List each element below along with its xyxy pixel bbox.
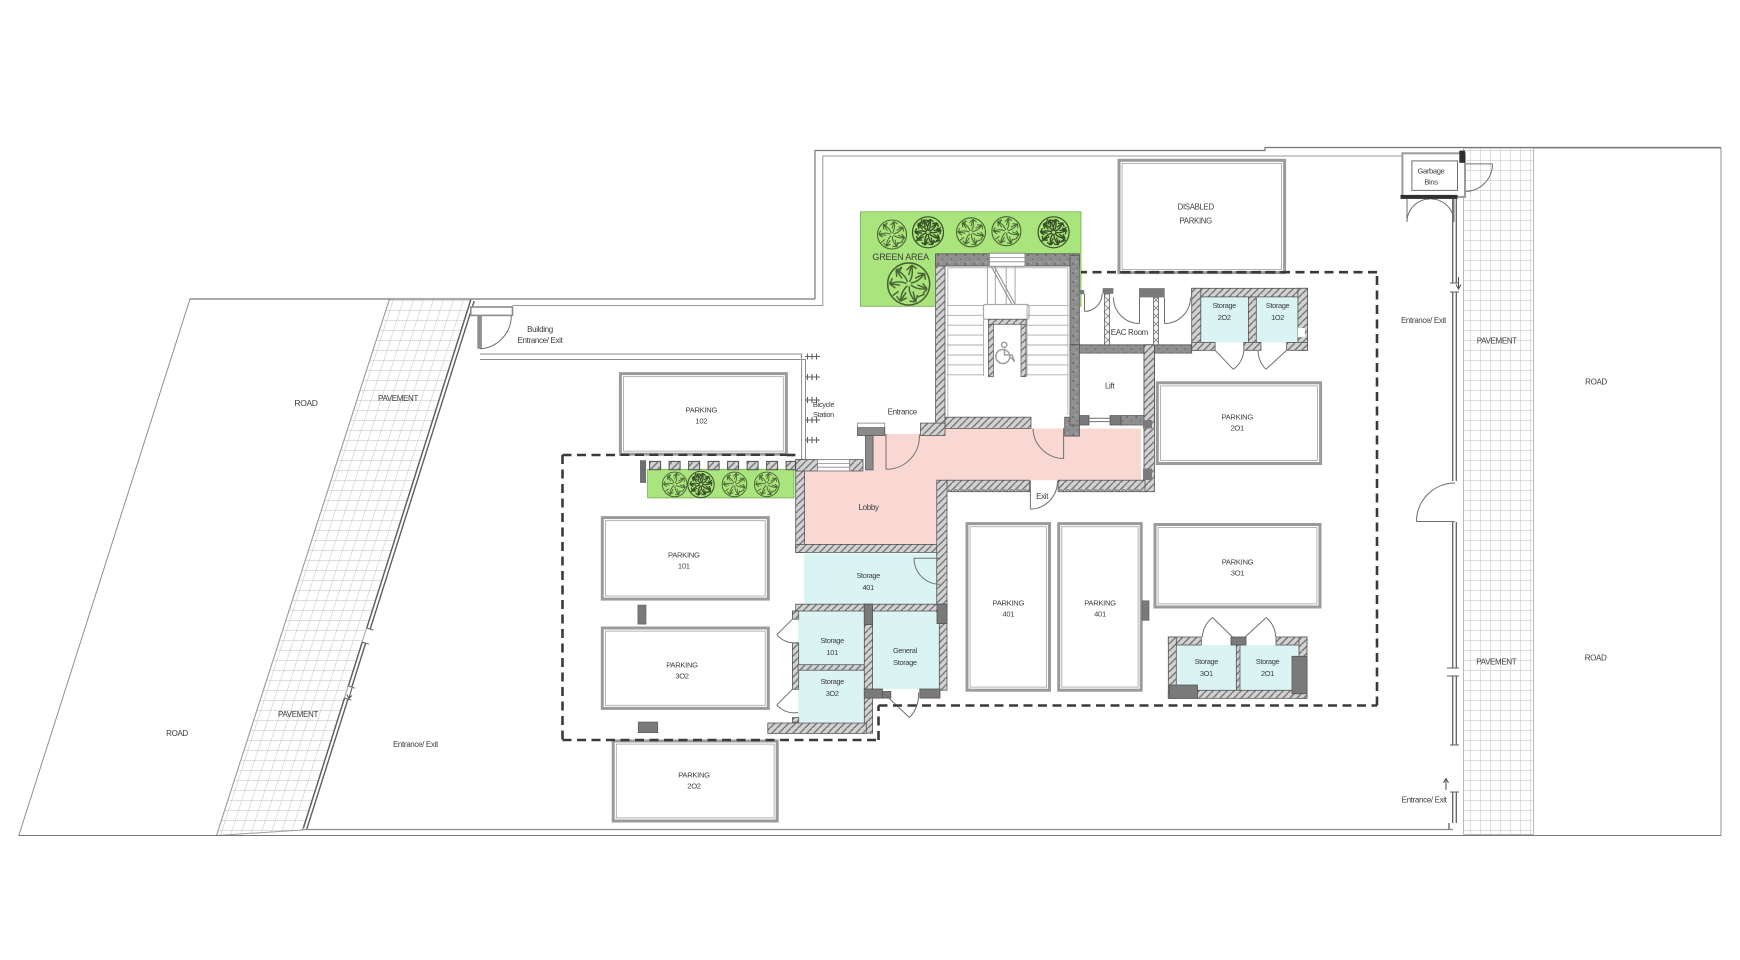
svg-text:Entrance/ Exit: Entrance/ Exit	[518, 336, 564, 345]
svg-text:PARKING: PARKING	[993, 599, 1025, 608]
svg-text:2O1: 2O1	[1230, 424, 1244, 433]
svg-text:PAVEMENT: PAVEMENT	[1477, 337, 1517, 346]
svg-text:ROAD: ROAD	[294, 398, 317, 408]
svg-text:3O2: 3O2	[675, 672, 689, 681]
svg-text:401: 401	[1094, 610, 1106, 619]
svg-text:101: 101	[827, 648, 839, 657]
svg-text:EAC Room: EAC Room	[1111, 328, 1149, 337]
svg-text:Exit: Exit	[1036, 492, 1049, 501]
svg-text:2O1: 2O1	[1261, 669, 1274, 678]
svg-text:Entrance/ Exit: Entrance/ Exit	[1401, 316, 1447, 325]
svg-text:ROAD: ROAD	[1585, 378, 1607, 387]
svg-text:ROAD: ROAD	[166, 729, 188, 738]
svg-text:GREEN AREA: GREEN AREA	[872, 252, 929, 262]
svg-text:3O2: 3O2	[826, 689, 839, 698]
svg-text:Storage: Storage	[820, 677, 844, 686]
svg-text:PARKING: PARKING	[666, 661, 698, 670]
svg-text:PARKING: PARKING	[1222, 558, 1254, 567]
svg-text:ROAD: ROAD	[1585, 654, 1607, 663]
svg-text:Bicycle: Bicycle	[813, 400, 834, 409]
svg-text:Entrance/ Exit: Entrance/ Exit	[393, 740, 439, 749]
svg-text:Storage: Storage	[856, 571, 880, 580]
svg-text:Storage: Storage	[1212, 301, 1236, 310]
svg-text:Entrance/ Exit: Entrance/ Exit	[1402, 796, 1448, 805]
svg-text:Storage: Storage	[1195, 657, 1219, 666]
svg-text:102: 102	[695, 417, 707, 426]
svg-text:1O2: 1O2	[1271, 313, 1284, 322]
svg-text:PARKING: PARKING	[686, 406, 718, 415]
svg-text:Building: Building	[527, 325, 553, 334]
svg-text:Station: Station	[813, 410, 834, 419]
svg-text:PARKING: PARKING	[1179, 217, 1212, 226]
svg-text:2O2: 2O2	[687, 782, 701, 791]
svg-text:401: 401	[863, 583, 875, 592]
svg-text:Lobby: Lobby	[859, 503, 879, 512]
svg-text:PARKING: PARKING	[678, 771, 710, 780]
svg-text:Entrance: Entrance	[888, 408, 918, 417]
svg-text:DISABLED: DISABLED	[1178, 203, 1215, 212]
svg-text:Storage: Storage	[893, 658, 917, 667]
svg-text:Storage: Storage	[820, 636, 844, 645]
svg-text:PAVEMENT: PAVEMENT	[378, 394, 418, 403]
svg-text:PARKING: PARKING	[1084, 599, 1116, 608]
svg-text:Storage: Storage	[1256, 657, 1280, 666]
svg-text:101: 101	[678, 562, 690, 571]
svg-text:401: 401	[1002, 610, 1014, 619]
svg-text:Bins: Bins	[1424, 178, 1438, 187]
svg-text:General: General	[893, 646, 918, 655]
svg-text:PARKING: PARKING	[668, 551, 700, 560]
svg-text:PARKING: PARKING	[1221, 413, 1253, 422]
svg-text:Garbage: Garbage	[1417, 167, 1444, 176]
svg-text:PAVEMENT: PAVEMENT	[278, 710, 318, 719]
svg-text:3O1: 3O1	[1200, 669, 1213, 678]
svg-text:3O1: 3O1	[1231, 569, 1245, 578]
svg-text:Lift: Lift	[1105, 382, 1115, 391]
svg-text:PAVEMENT: PAVEMENT	[1476, 658, 1516, 667]
svg-text:2O2: 2O2	[1218, 313, 1231, 322]
svg-text:Storage: Storage	[1266, 301, 1290, 310]
